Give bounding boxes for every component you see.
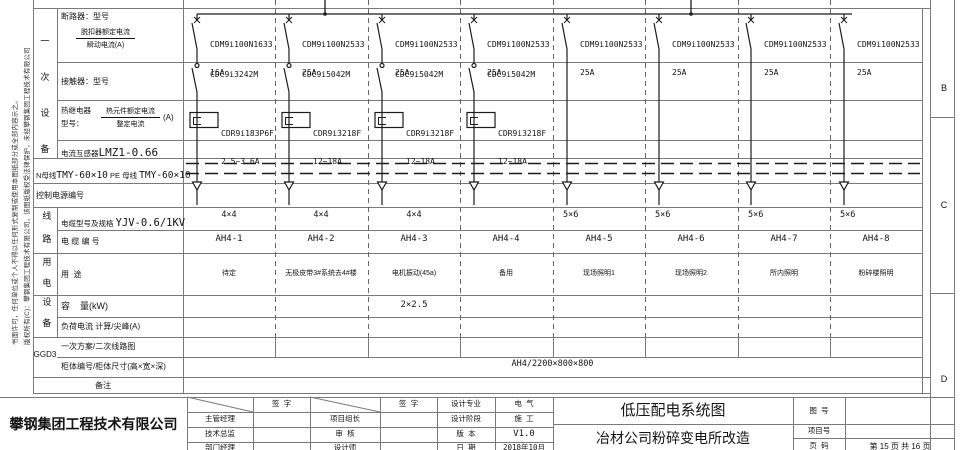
cable-spec-value: 5×6: [748, 211, 763, 221]
cable-spec-value: 4×4: [183, 211, 275, 221]
signature-header-1: 签 字: [253, 400, 310, 409]
cable-spec-value: 5×6: [655, 211, 670, 221]
usage-value: 备用: [460, 270, 552, 278]
cable-no-row-label: 电 缆 编 号: [61, 237, 100, 246]
ct-model: LMZ1-0.66: [99, 146, 159, 159]
usage-row-label: 用 途: [61, 270, 81, 279]
zone-marker-c: C: [936, 200, 952, 210]
contactor-icon: [380, 64, 384, 68]
breaker-model: CDM9i100N2533: [395, 40, 458, 49]
usage-value: 所内照明: [738, 270, 830, 278]
capacity-value: 2×2.5: [368, 300, 460, 310]
panel-name: GGD3: [32, 350, 58, 359]
breaker-label: CDM9i100N2533 25A: [580, 22, 643, 96]
circuit-line: [654, 14, 659, 205]
note-row-label: 备注: [95, 381, 111, 390]
circuit-line: [192, 14, 197, 205]
cable-arrow-icon: [285, 182, 294, 190]
breaker-label: CDM9i100N2533 25A: [302, 22, 365, 96]
relay-range: 12~18A: [313, 157, 361, 166]
thermal-relay-icon: [190, 113, 218, 128]
cable-no-value: AH4-3: [368, 234, 460, 244]
thermal-relay-icon: [467, 113, 495, 128]
meta-label-phase: 设计阶段: [437, 415, 495, 424]
breaker-current: 25A: [580, 68, 643, 77]
circuit-line: [377, 14, 382, 205]
relay-label: CDR9i3218F 12~18A: [498, 111, 546, 185]
cable-spec-value: 5×6: [563, 211, 578, 221]
usage-value: 现场照明2: [645, 270, 737, 278]
breaker-model: CDM9i100N1633: [210, 40, 273, 49]
page-no-label: 页 码: [793, 442, 845, 450]
contactor-row-title: 接触器：型号: [61, 77, 109, 86]
circuit-8-symbols: [839, 14, 849, 205]
breaker-row-title: 断路器：型号: [61, 12, 109, 21]
cabinet-size-value: AH4/2200×800×800: [183, 360, 922, 370]
thermal-fraction-bottom: 整定电流: [101, 118, 160, 129]
breaker-label: CDM9i100N2533 25A: [395, 22, 458, 96]
cable-arrow-icon: [378, 182, 387, 190]
page-no-value: 第 15 页 共 16 页: [845, 442, 955, 450]
meta-value-phase: 施 工: [495, 415, 553, 424]
meta-label-discipline: 设计专业: [437, 400, 495, 409]
breaker-label: CDM9i100N2533 25A: [857, 22, 920, 96]
breaker-label: CDM9i100N1633 16A: [210, 22, 273, 96]
breaker-model: CDM9i100N2533: [487, 40, 550, 49]
circuit-5-symbols: [562, 14, 572, 205]
cable-spec-prefix: 电缆型号及规格: [61, 219, 116, 228]
relay-model: CDR9i183P6F: [221, 129, 274, 138]
pe-bus-spec: TMY-60×10: [139, 170, 190, 181]
breaker-current: 25A: [672, 68, 735, 77]
breaker-model: CDM9i100N2533: [302, 40, 365, 49]
circuit-line: [839, 14, 844, 205]
cable-no-value: AH4-5: [553, 234, 645, 244]
thermal-row-title1: 热继电器: [61, 107, 91, 116]
drawing-sheet: 版权所有(C)：攀钢集团工程技术有限公司，该图纸版权受法律保护，未经攀钢集团工程…: [0, 0, 960, 450]
cable-arrow-icon: [747, 182, 756, 190]
category-line: 线路: [41, 211, 51, 257]
contactor-model: CDC9i3242M: [210, 70, 258, 79]
cable-spec-value: 4×4: [368, 211, 460, 221]
contactor-icon: [472, 64, 476, 68]
cable-no-value: AH4-2: [275, 234, 367, 244]
cable-no-value: AH4-8: [830, 234, 922, 244]
breaker-model: CDM9i100N2533: [764, 40, 827, 49]
scheme-row-label: 一次方案/二次线路图: [61, 342, 135, 351]
category-primary-equipment: 一次设备: [39, 36, 49, 180]
n-bus-spec: TMY-60×10: [56, 170, 107, 181]
role-label-reviewer: 审 核: [310, 430, 380, 439]
breaker-model: CDM9i100N2533: [672, 40, 735, 49]
role-label-dept-manager: 部门经理: [187, 444, 253, 450]
relay-label: CDR9i3218F 12~18A: [313, 111, 361, 185]
relay-range: 12~18A: [406, 157, 454, 166]
control-power-row-label: 控制电源编号: [36, 191, 84, 200]
meta-value-date: 2018年10月: [495, 444, 553, 450]
zone-marker-b: B: [936, 83, 952, 93]
cable-spec-value: 5×6: [840, 211, 855, 221]
circuit-6-symbols: [654, 14, 664, 205]
usage-value: 无极皮带3#系统去4#楼: [275, 270, 367, 278]
meta-label-date: 日 期: [437, 444, 495, 450]
n-pe-bus-label: N母线TMY-60×10 PE 母线 TMY-60×10: [36, 165, 191, 183]
cable-no-value: AH4-4: [460, 234, 552, 244]
thermal-row-title2: 型号：: [61, 120, 84, 129]
breaker-model: CDM9i100N2533: [580, 40, 643, 49]
cable-spec-type: YJV-0.6/1KV: [116, 217, 186, 229]
relay-range: 12~18A: [498, 157, 546, 166]
usage-value: 现场照明1: [553, 270, 645, 278]
contactor-icon: [287, 64, 291, 68]
contactor-model: CDC9i5042M: [302, 70, 350, 79]
thermal-rating-fraction: 热元件额定电流 整定电流: [101, 106, 160, 129]
signature-header-2: 签 字: [380, 400, 437, 409]
cable-arrow-icon: [193, 182, 202, 190]
meta-value-version: V1.0: [495, 429, 553, 439]
capacity-row-label: 容 量(kW): [61, 301, 108, 311]
bus-junction-dot: [689, 12, 693, 16]
meta-label-version: 版 本: [437, 430, 495, 439]
relay-model: CDR9i3218F: [406, 129, 454, 138]
relay-range: 2.5~3.6A: [221, 157, 274, 166]
project-no-label: 项目号: [793, 427, 845, 436]
contactor-model: CDC9i5042M: [395, 70, 443, 79]
cabinet-row-label: 柜体编号/柜体尺寸(高×宽×深): [61, 362, 166, 371]
pe-bus-prefix: PE 母线: [108, 171, 139, 180]
circuit-line: [284, 14, 289, 205]
cable-no-value: AH4-7: [738, 234, 830, 244]
main-bus: [197, 0, 852, 16]
role-label-chief-manager: 主管经理: [187, 415, 253, 424]
zone-marker-d: D: [936, 374, 952, 384]
relay-model: CDR9i3218F: [498, 129, 546, 138]
usage-value: 待定: [183, 270, 275, 278]
cable-arrow-icon: [840, 182, 849, 190]
thermal-fraction-top: 热元件额定电流: [101, 106, 160, 118]
copyright-note-line2: 书面许可，任何单位或个人不得以任何形式复制或使用本图纸部分或全部内容示之。: [9, 97, 19, 345]
contactor-icon: [195, 64, 199, 68]
cable-spec-row-label: 电缆型号及规格 YJV-0.6/1KV: [61, 213, 185, 231]
cable-no-value: AH4-1: [183, 234, 275, 244]
breaker-rating-fraction: 脱扣器额定电流 瞬动电流(A): [76, 27, 135, 50]
role-label-project-leader: 项目组长: [310, 415, 380, 424]
load-current-row-label: 负荷电流 计算/尖峰(A): [61, 322, 140, 331]
project-title: 冶材公司粉碎变电所改造: [553, 430, 793, 446]
meta-value-discipline: 电 气: [495, 400, 553, 409]
relay-label: CDR9i3218F 12~18A: [406, 111, 454, 185]
breaker-label: CDM9i100N2533 25A: [487, 22, 550, 96]
usage-value: 粉碎楼照明: [830, 270, 922, 278]
cable-arrow-icon: [563, 182, 572, 190]
circuit-7-symbols: [746, 14, 756, 205]
breaker-label: CDM9i100N2533 25A: [764, 22, 827, 96]
drawing-title: 低压配电系统图: [553, 402, 793, 419]
thermal-relay-icon: [375, 113, 403, 128]
relay-label: CDR9i183P6F 2.5~3.6A: [221, 111, 274, 185]
drawing-no-label: 图 号: [793, 407, 845, 416]
role-label-tech-director: 技术总监: [187, 430, 253, 439]
bus-junction-dot: [323, 12, 327, 16]
n-bus-prefix: N母线: [36, 171, 56, 180]
contactor-model: CDC9i5042M: [487, 70, 535, 79]
category-device: 设备: [41, 297, 51, 339]
company-name: 攀钢集团工程技术有限公司: [0, 416, 187, 432]
circuit-line: [746, 14, 751, 205]
ct-label-prefix: 电流互感器: [61, 149, 99, 158]
breaker-label: CDM9i100N2533 25A: [672, 22, 735, 96]
cable-arrow-icon: [470, 182, 479, 190]
breaker-current: 25A: [857, 68, 920, 77]
circuit-line: [562, 14, 567, 205]
usage-value: 电机振动(45a): [368, 270, 460, 278]
breaker-model: CDM9i100N2533: [857, 40, 920, 49]
cable-spec-value: 4×4: [275, 211, 367, 221]
breaker-fraction-top: 脱扣器额定电流: [76, 27, 135, 39]
thermal-unit: (A): [163, 113, 174, 122]
cable-no-value: AH4-6: [645, 234, 737, 244]
circuit-line: [469, 14, 474, 205]
cable-arrow-icon: [655, 182, 664, 190]
relay-model: CDR9i3218F: [313, 129, 361, 138]
breaker-fraction-bottom: 瞬动电流(A): [76, 39, 135, 50]
ct-row-label: 电流互感器LMZ1-0.66: [61, 143, 158, 161]
thermal-relay-icon: [282, 113, 310, 128]
copyright-note-line1: 版权所有(C)：攀钢集团工程技术有限公司，该图纸版权受法律保护，未经攀钢集团工程…: [21, 47, 31, 345]
role-label-designer: 设计师: [310, 444, 380, 450]
category-power-use: 用电: [41, 257, 51, 299]
breaker-current: 25A: [764, 68, 827, 77]
